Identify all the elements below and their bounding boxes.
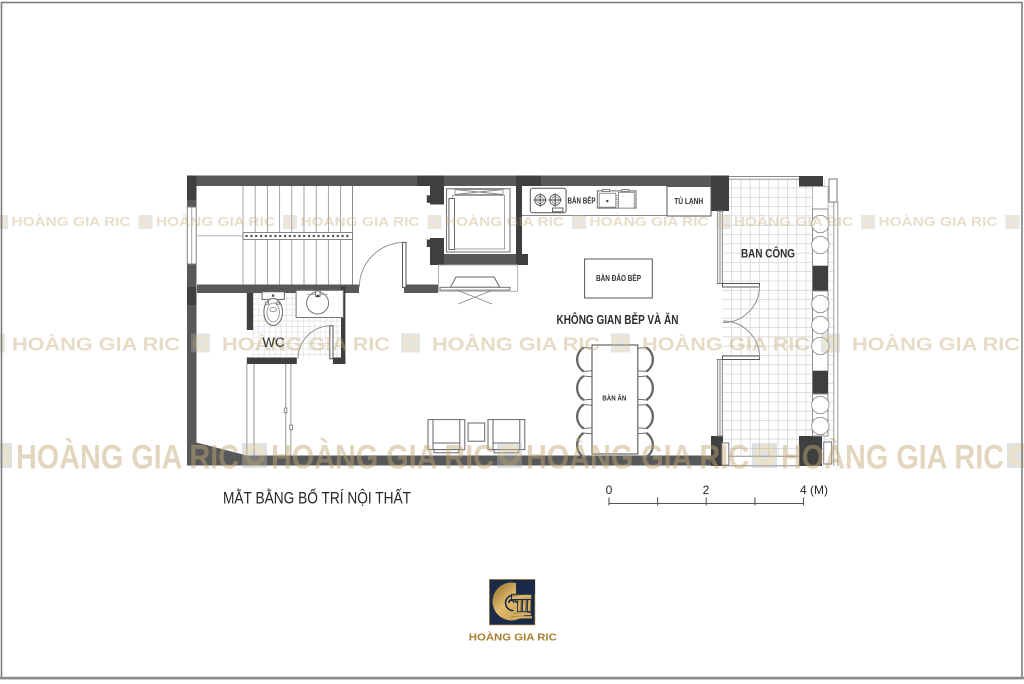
svg-text:0: 0	[606, 483, 613, 497]
svg-text:HOÀNG GIA RIC: HOÀNG GIA RIC	[271, 439, 494, 477]
svg-text:HOÀNG GIA RIC: HOÀNG GIA RIC	[12, 214, 132, 229]
svg-text:BÀN ĂN: BÀN ĂN	[602, 394, 626, 403]
svg-text:HOÀNG GIA RIC: HOÀNG GIA RIC	[642, 334, 810, 355]
svg-text:HOÀNG GIA RIC: HOÀNG GIA RIC	[432, 334, 600, 355]
svg-text:BÀN BỄP: BÀN BỄP	[568, 196, 596, 205]
svg-text:BAN CÔNG: BAN CÔNG	[741, 246, 795, 261]
svg-text:HOÀNG GIA RIC: HOÀNG GIA RIC	[301, 214, 421, 229]
svg-text:BÀN ĐẢO BỄP: BÀN ĐẢO BỄP	[596, 272, 641, 283]
svg-text:HOÀNG GIA RIC: HOÀNG GIA RIC	[590, 214, 710, 229]
svg-text:MẰT BẰNG BỐ TRÍ NỘI THẤT: MẰT BẰNG BỐ TRÍ NỘI THẤT	[223, 488, 411, 508]
svg-text:HOÀNG GIA RIC: HOÀNG GIA RIC	[445, 214, 565, 229]
svg-text:HOÀNG GIA RIC: HOÀNG GIA RIC	[12, 334, 180, 355]
svg-text:4 (M): 4 (M)	[800, 483, 828, 497]
svg-text:HOÀNG GIA RIC: HOÀNG GIA RIC	[526, 439, 749, 477]
svg-text:HOÀNG GIA RIC: HOÀNG GIA RIC	[852, 334, 1020, 355]
svg-text:HOÀNG GIA RIC: HOÀNG GIA RIC	[469, 631, 557, 644]
svg-text:HOÀNG GIA RIC: HOÀNG GIA RIC	[16, 439, 239, 477]
svg-text:HOÀNG GIA RIC: HOÀNG GIA RIC	[781, 439, 1004, 477]
svg-text:HOÀNG GIA RIC: HOÀNG GIA RIC	[879, 214, 999, 229]
svg-text:HOÀNG GIA RIC: HOÀNG GIA RIC	[222, 334, 390, 355]
svg-text:HOÀNG GIA RIC: HOÀNG GIA RIC	[734, 214, 854, 229]
svg-text:KHÔNG GIAN BỄP VÀ ĂN: KHÔNG GIAN BỄP VÀ ĂN	[557, 312, 679, 327]
svg-text:HOÀNG GIA RIC: HOÀNG GIA RIC	[156, 214, 276, 229]
svg-text:WC: WC	[263, 335, 285, 350]
svg-text:TỦ LẠNH: TỦ LẠNH	[674, 195, 703, 206]
svg-text:2: 2	[703, 483, 710, 497]
